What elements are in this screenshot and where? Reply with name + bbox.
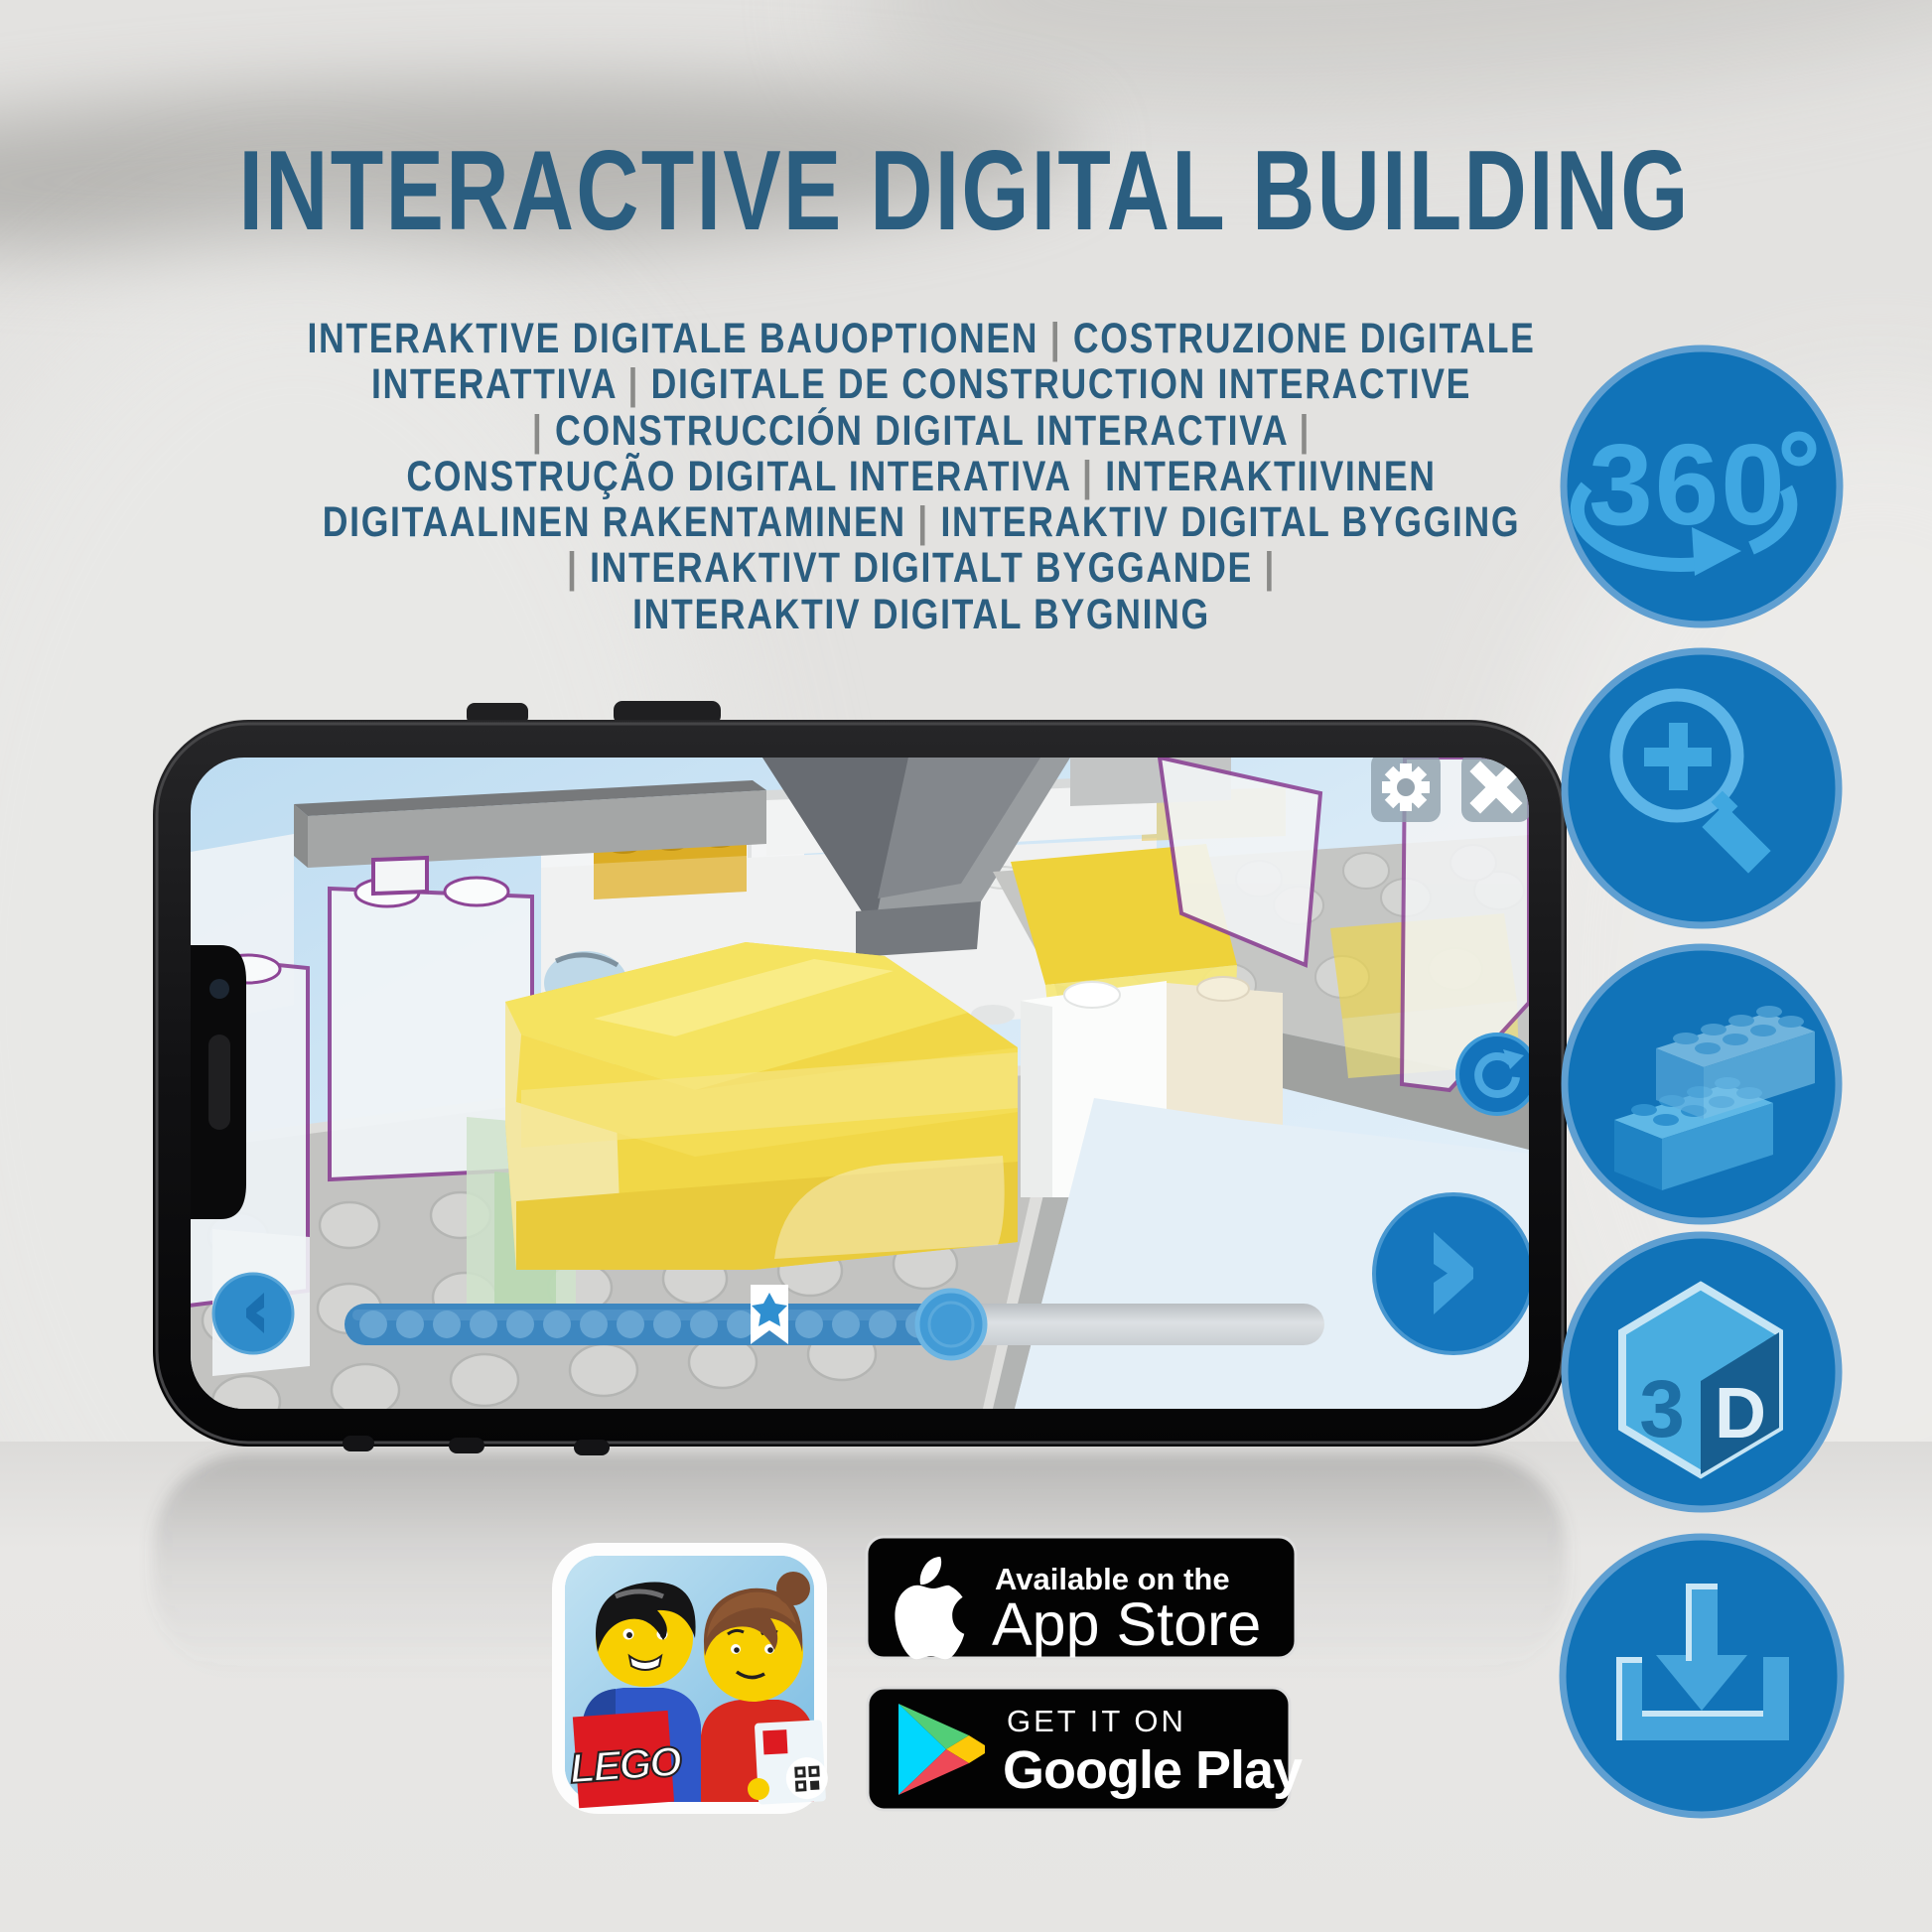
svg-text:GET IT ON: GET IT ON: [1007, 1704, 1186, 1738]
svg-text:App Store: App Store: [992, 1590, 1261, 1658]
svg-text:D: D: [1715, 1374, 1766, 1453]
svg-text:Google Play: Google Play: [1003, 1740, 1303, 1800]
svg-text:LEGO: LEGO: [568, 1737, 682, 1792]
svg-text:360: 360: [1588, 420, 1787, 549]
svg-text:3: 3: [1639, 1364, 1685, 1454]
